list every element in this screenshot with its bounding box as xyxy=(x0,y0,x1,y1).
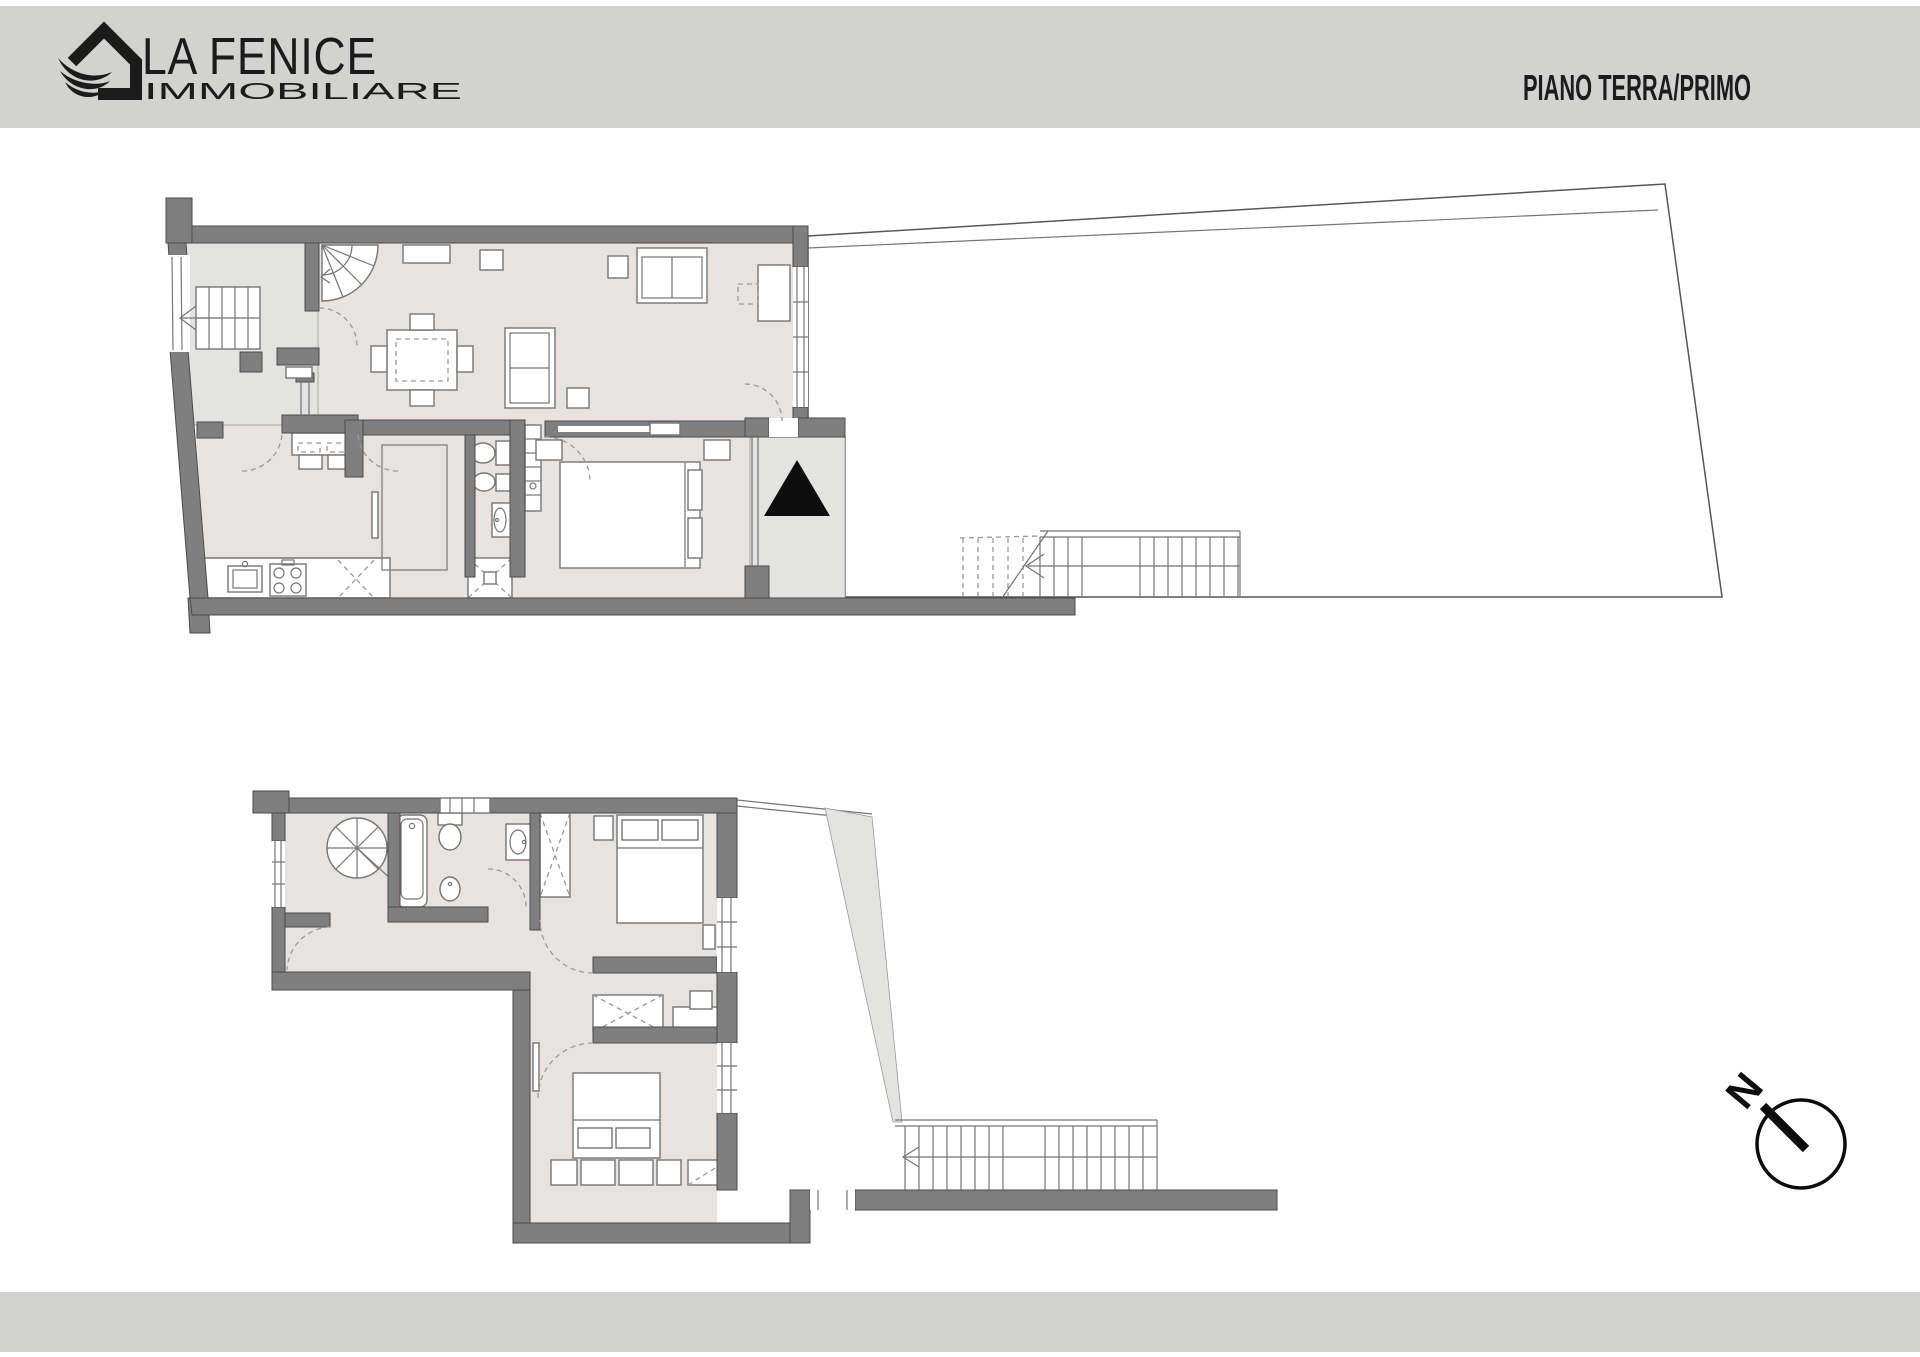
washbasin xyxy=(492,503,511,537)
ground-floor-plan xyxy=(166,184,1722,633)
door-leaf xyxy=(533,1043,539,1091)
brand-subtitle: IMMOBILIARE xyxy=(144,78,462,104)
first-floor-staircase xyxy=(895,1120,1157,1190)
door-leaf xyxy=(372,492,378,538)
pillow xyxy=(662,820,698,840)
floor-plan-sheet: LA FENICE IMMOBILIARE PIANO TERRA/PRIMO xyxy=(0,0,1920,1357)
living-room-window xyxy=(793,267,808,407)
top-wall-window xyxy=(440,798,490,813)
closet-shelves xyxy=(525,425,541,511)
bidet-first xyxy=(440,877,460,901)
compass: N xyxy=(1716,1064,1845,1188)
garden-boundary xyxy=(808,184,1722,597)
chair-left xyxy=(371,346,387,372)
double-bed-top xyxy=(617,815,703,923)
footer-band xyxy=(0,1292,1920,1352)
nightstand xyxy=(594,816,613,840)
sofa-top xyxy=(637,248,707,303)
coffee-table xyxy=(567,388,589,408)
kitchen-stove xyxy=(270,560,306,596)
lamp-table xyxy=(608,256,628,278)
bottom-door-opening xyxy=(810,1190,855,1210)
washbasin-first xyxy=(506,824,532,860)
pillow-1 xyxy=(688,470,702,510)
sofa-right xyxy=(505,328,555,408)
bathtub xyxy=(397,815,427,907)
nightstand-1 xyxy=(536,440,562,460)
chair-bottom xyxy=(410,390,434,406)
garden-plot xyxy=(808,184,1722,598)
header-band: LA FENICE IMMOBILIARE PIANO TERRA/PRIMO xyxy=(0,6,1920,128)
toilet xyxy=(471,441,510,465)
nightstand-2 xyxy=(704,440,730,460)
double-bed-bottom xyxy=(573,1073,660,1158)
double-bed xyxy=(560,462,702,568)
tv-cabinet xyxy=(403,245,450,263)
pillow-2 xyxy=(688,518,702,558)
wardrobe xyxy=(540,813,570,897)
right-wall-window-1 xyxy=(717,898,737,972)
kitchen-sink xyxy=(228,561,262,592)
toilet-first xyxy=(438,813,462,850)
compass-needle xyxy=(1763,1106,1806,1149)
chair-right xyxy=(457,346,473,372)
page-title: PIANO TERRA/PRIMO xyxy=(1523,67,1751,108)
study-nook xyxy=(593,991,727,1032)
pillow xyxy=(622,820,658,840)
stool-1 xyxy=(299,455,322,469)
terrace-boundary-wall xyxy=(737,800,902,1122)
pillow xyxy=(616,1128,650,1148)
bench xyxy=(703,925,715,949)
left-wall-window xyxy=(272,841,285,907)
desk-chair xyxy=(690,991,712,1009)
entry-niche xyxy=(286,367,312,378)
chair-top xyxy=(410,314,434,330)
sheet-canvas: LA FENICE IMMOBILIARE PIANO TERRA/PRIMO xyxy=(0,0,1920,1357)
right-wall-window-2 xyxy=(717,1043,737,1113)
side-table xyxy=(480,250,503,270)
pillow xyxy=(578,1128,612,1148)
first-floor-plan xyxy=(253,791,1277,1243)
bidet xyxy=(473,473,510,491)
nook-closet xyxy=(593,995,663,1032)
